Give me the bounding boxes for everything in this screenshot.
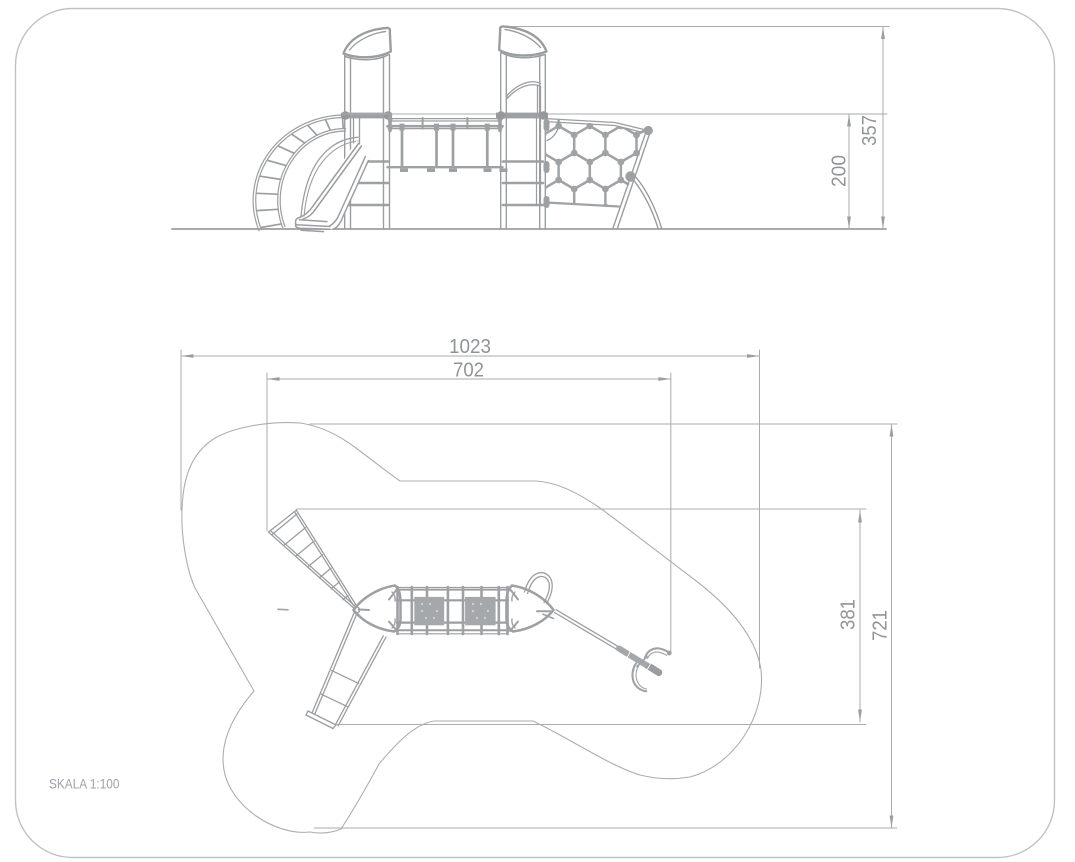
svg-text:702: 702 [453,360,484,382]
svg-text:721: 721 [870,610,892,641]
svg-text:357: 357 [859,115,881,146]
svg-text:SKALA 1:100: SKALA 1:100 [49,777,120,792]
svg-text:200: 200 [829,155,851,187]
svg-text:381: 381 [838,599,860,630]
svg-text:1023: 1023 [449,336,491,358]
